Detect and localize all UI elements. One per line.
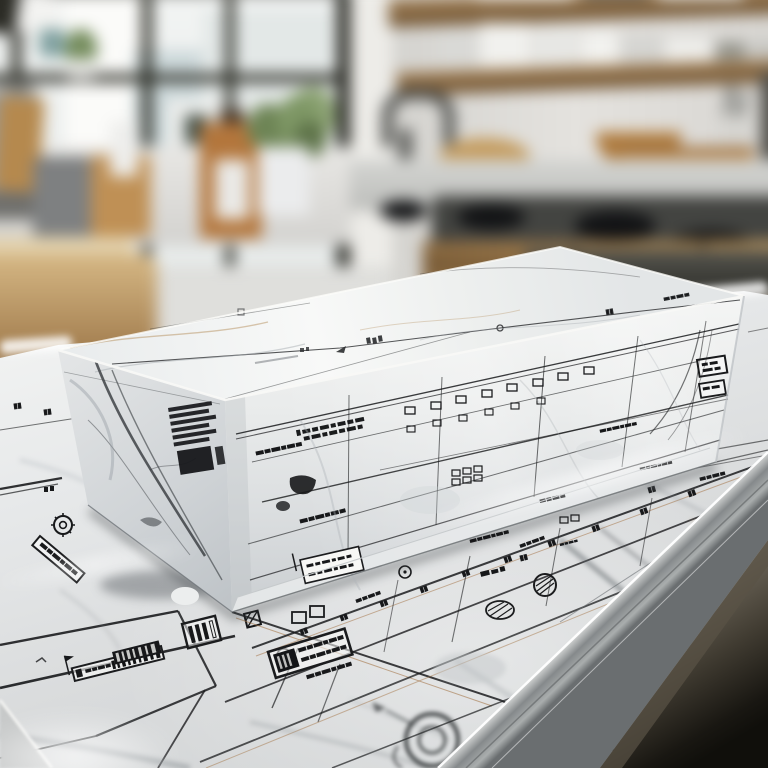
block-foot <box>171 587 199 605</box>
scene-artwork <box>0 0 768 768</box>
hatched-oval-symbol <box>486 601 514 619</box>
box-stamp <box>182 616 221 648</box>
kitchen-scene <box>0 0 768 768</box>
sheet-corner-edge <box>0 700 52 768</box>
